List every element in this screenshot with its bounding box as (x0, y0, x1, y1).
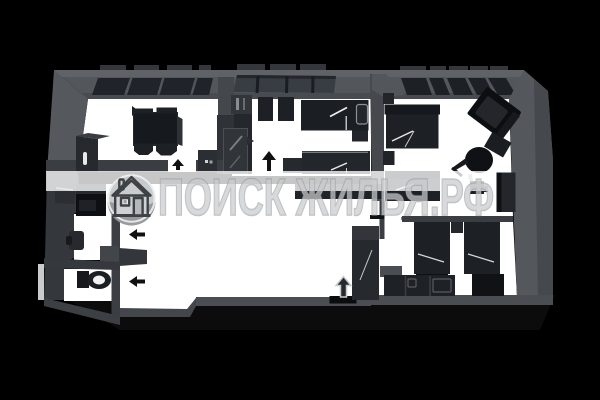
svg-text:ПОИСК ЖИЛЬЯ.РФ: ПОИСК ЖИЛЬЯ.РФ (158, 169, 494, 227)
